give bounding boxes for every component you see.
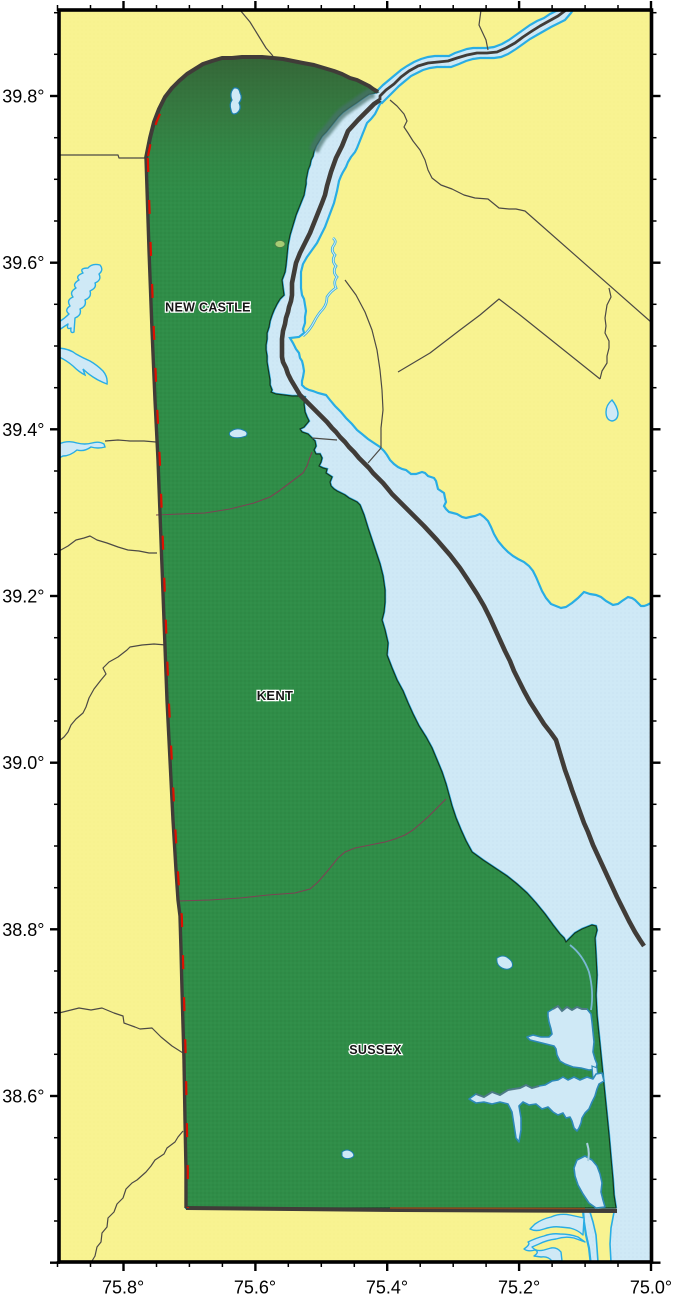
svg-text:39.6°: 39.6° xyxy=(2,253,44,273)
svg-text:KENT: KENT xyxy=(257,688,294,703)
svg-text:39.8°: 39.8° xyxy=(2,87,44,107)
svg-text:75.6°: 75.6° xyxy=(234,1278,276,1298)
svg-text:39.4°: 39.4° xyxy=(2,420,44,440)
svg-text:SUSSEX: SUSSEX xyxy=(349,1043,402,1057)
svg-text:75.4°: 75.4° xyxy=(366,1278,408,1298)
svg-text:39.2°: 39.2° xyxy=(2,587,44,607)
svg-text:75.8°: 75.8° xyxy=(102,1278,144,1298)
svg-text:38.6°: 38.6° xyxy=(2,1087,44,1107)
svg-text:39.0°: 39.0° xyxy=(2,753,44,773)
svg-text:NEW CASTLE: NEW CASTLE xyxy=(165,301,251,315)
svg-text:75.0°: 75.0° xyxy=(630,1278,672,1298)
svg-text:38.8°: 38.8° xyxy=(2,920,44,940)
svg-text:75.2°: 75.2° xyxy=(498,1278,540,1298)
